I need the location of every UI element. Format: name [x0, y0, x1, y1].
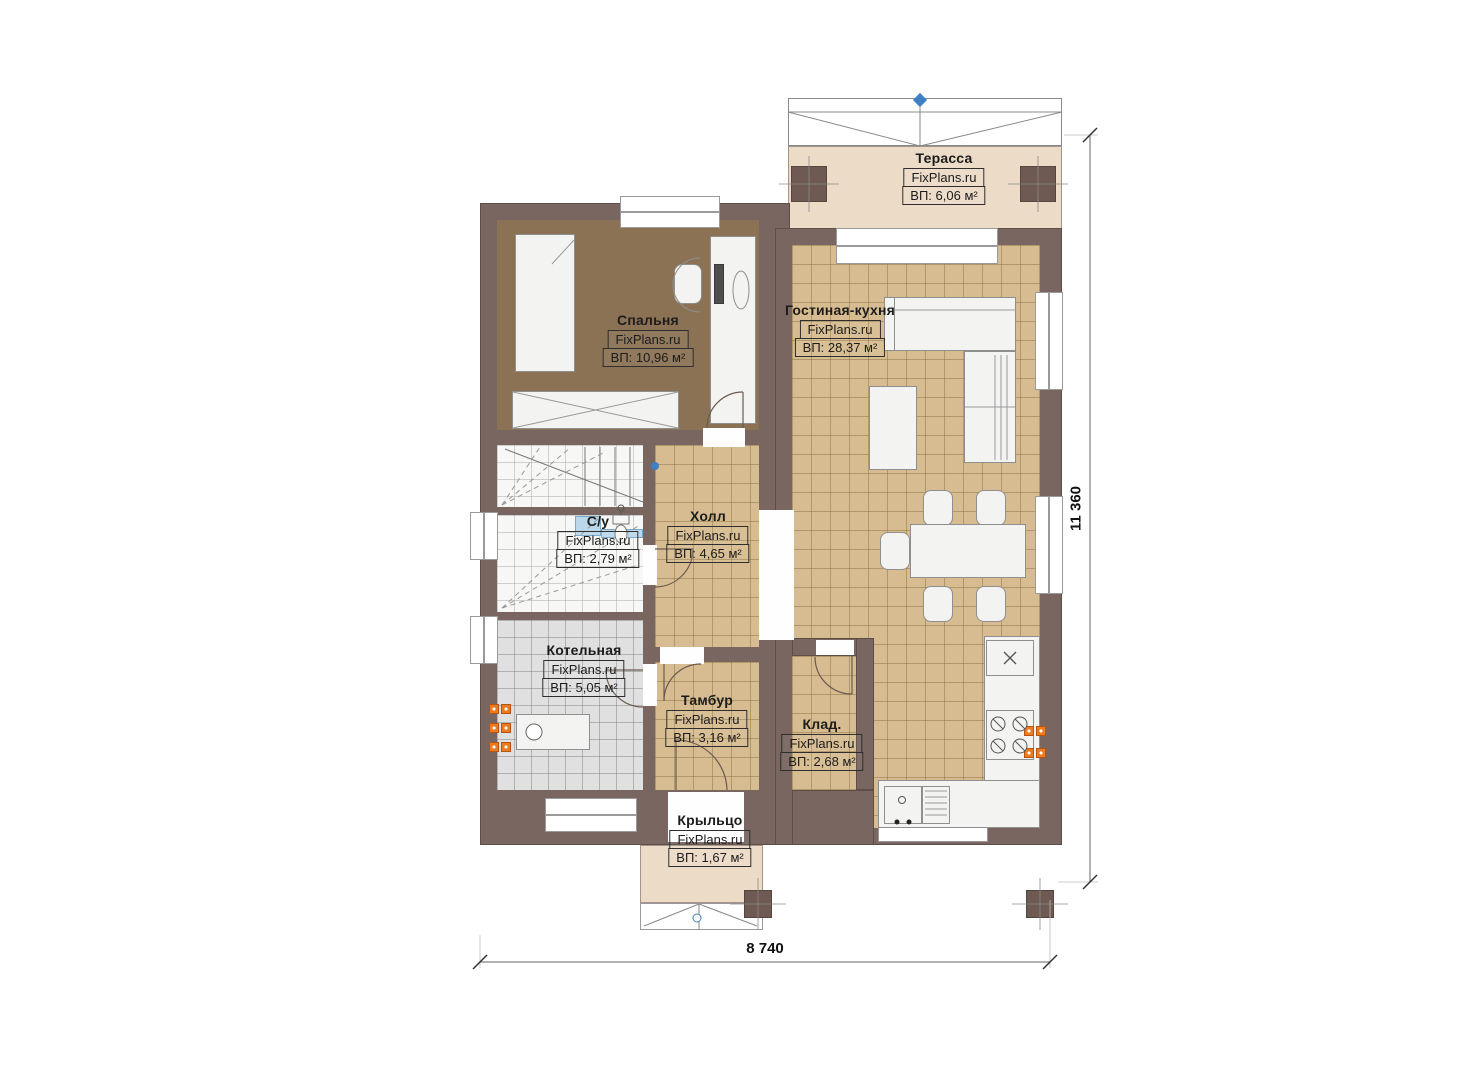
- monitor-symbol: [714, 264, 724, 304]
- room-name: Котельная: [546, 642, 621, 658]
- brand-watermark: FixPlans.ru: [799, 320, 880, 339]
- bedroom-window: [620, 196, 720, 228]
- dining-chair: [923, 490, 953, 526]
- room-name: Терасса: [916, 150, 973, 166]
- hall-vestibule-door-opening: [660, 647, 704, 664]
- room-name: Гостиная-кухня: [785, 302, 895, 318]
- room-name: Холл: [690, 508, 726, 524]
- room-area: ВП: 28,37 м²: [795, 338, 886, 357]
- brand-watermark: FixPlans.ru: [669, 830, 750, 849]
- kitchen-sink-cell: [986, 640, 1034, 676]
- brand-watermark: FixPlans.ru: [607, 330, 688, 349]
- boiler-symbol: [516, 714, 590, 750]
- brand-watermark: FixPlans.ru: [903, 168, 984, 187]
- terrace-pillar-right: [1020, 166, 1056, 202]
- room-area: ВП: 4,65 м²: [666, 544, 749, 563]
- room-label-storage: Клад. FixPlans.ru ВП: 2,68 м²: [780, 716, 863, 771]
- dimension-width-label: 8 740: [700, 940, 830, 957]
- terrace-door-window: [836, 228, 998, 264]
- room-label-bedroom: Спальня FixPlans.ru ВП: 10,96 м²: [603, 312, 694, 367]
- bathroom-window: [470, 512, 498, 560]
- sink-drainer: [922, 786, 950, 824]
- hall-living-opening: [759, 510, 794, 640]
- porch-pillar: [744, 890, 772, 918]
- living-right-window-2: [1035, 496, 1063, 594]
- room-label-living-kitchen: Гостиная-кухня FixPlans.ru ВП: 28,37 м²: [785, 302, 895, 357]
- dining-chair: [976, 586, 1006, 622]
- room-label-terrace: Терасса FixPlans.ru ВП: 6,06 м²: [902, 150, 985, 205]
- bathroom-door-opening: [643, 545, 657, 585]
- room-name: С/у: [587, 513, 609, 529]
- living-right-window-1: [1035, 292, 1063, 390]
- floor-plan-canvas: Терасса FixPlans.ru ВП: 6,06 м² Спальня …: [0, 0, 1474, 1080]
- corner-pillar: [1026, 890, 1054, 918]
- room-label-bathroom: С/у FixPlans.ru ВП: 2,79 м²: [556, 513, 639, 568]
- outlet-marker: [489, 742, 511, 752]
- outlet-marker: [1024, 748, 1046, 758]
- sofa-chaise: [964, 351, 1016, 463]
- sofa-seat-top: [894, 297, 1016, 351]
- room-area: ВП: 1,67 м²: [668, 848, 751, 867]
- room-area: ВП: 5,05 м²: [542, 678, 625, 697]
- dining-chair: [976, 490, 1006, 526]
- room-area: ВП: 10,96 м²: [603, 348, 694, 367]
- storage-bottom-wall: [792, 790, 874, 845]
- brand-watermark: FixPlans.ru: [543, 660, 624, 679]
- terrace-roof-band: [788, 98, 1062, 146]
- terrace-pillar-left: [791, 166, 827, 202]
- brand-watermark: FixPlans.ru: [557, 531, 638, 550]
- room-name: Спальня: [617, 312, 679, 328]
- stairs-floor: [497, 445, 643, 507]
- brand-watermark: FixPlans.ru: [667, 526, 748, 545]
- room-label-porch: Крыльцо FixPlans.ru ВП: 1,67 м²: [668, 812, 751, 867]
- room-name: Клад.: [802, 716, 841, 732]
- boiler-bottom-window: [545, 798, 637, 832]
- dining-chair: [880, 532, 910, 570]
- outlet-marker: [1024, 726, 1046, 736]
- wardrobe-symbol: [512, 391, 679, 429]
- outlet-marker: [489, 723, 511, 733]
- room-area: ВП: 2,79 м²: [556, 549, 639, 568]
- dimension-height-label: 11 360: [1068, 473, 1085, 545]
- boiler-left-window: [470, 616, 498, 664]
- room-name: Крыльцо: [677, 812, 742, 828]
- chair-symbol: [674, 264, 702, 304]
- room-name: Тамбур: [681, 692, 733, 708]
- sink-symbol: [884, 786, 922, 824]
- room-area: ВП: 2,68 м²: [780, 752, 863, 771]
- room-area: ВП: 6,06 м²: [902, 186, 985, 205]
- bedroom-door-opening: [703, 428, 745, 447]
- storage-door-opening: [816, 640, 854, 655]
- boiler-door-opening: [643, 664, 657, 706]
- brand-watermark: FixPlans.ru: [666, 710, 747, 729]
- dining-chair: [923, 586, 953, 622]
- room-label-vestibule: Тамбур FixPlans.ru ВП: 3,16 м²: [665, 692, 748, 747]
- brand-watermark: FixPlans.ru: [781, 734, 862, 753]
- outlet-marker: [489, 704, 511, 714]
- dining-table-symbol: [910, 524, 1026, 578]
- room-label-boiler-room: Котельная FixPlans.ru ВП: 5,05 м²: [542, 642, 625, 697]
- bed-symbol: [515, 234, 575, 372]
- room-area: ВП: 3,16 м²: [665, 728, 748, 747]
- room-label-hall: Холл FixPlans.ru ВП: 4,65 м²: [666, 508, 749, 563]
- coffee-table-symbol: [869, 386, 917, 470]
